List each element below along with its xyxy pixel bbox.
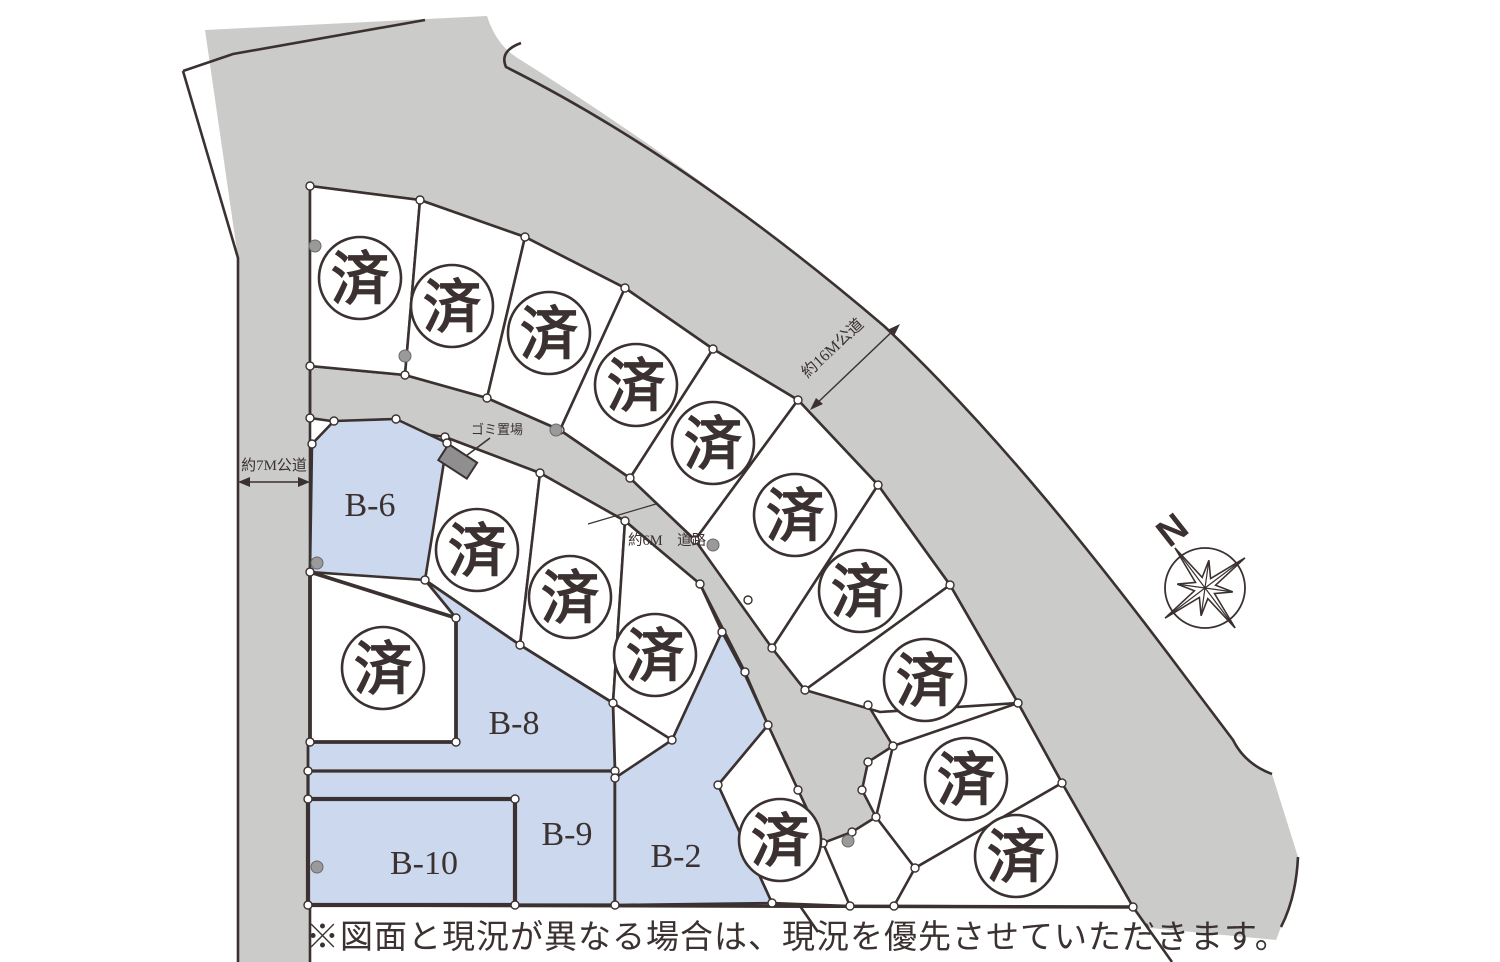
compass: N (1149, 506, 1245, 628)
svg-text:済: 済 (684, 412, 743, 477)
road-7m-label: 約7M公道 (241, 457, 307, 474)
svg-text:済: 済 (331, 247, 390, 312)
lot-b9-label: B-9 (542, 816, 593, 853)
lot-b2-label: B-2 (651, 838, 702, 875)
garbage-label: ゴミ置場 (471, 422, 523, 437)
svg-text:済: 済 (751, 809, 810, 874)
site-plan-page: ゴミ置場 済 済 済 済 済 (0, 0, 1500, 962)
sold-marker: 済 (319, 237, 401, 319)
svg-text:済: 済 (626, 624, 685, 689)
footer-note: ※図面と現況が異なる場合は、現況を優先させていただきます。 (306, 919, 1289, 956)
road-6m-label: 約6M 道路 (628, 532, 707, 549)
svg-text:済: 済 (607, 354, 666, 419)
sold-marker: 済 (672, 402, 754, 484)
svg-text:済: 済 (766, 484, 825, 549)
svg-text:済: 済 (896, 649, 955, 714)
sold-marker: 済 (529, 556, 611, 638)
sold-marker: 済 (342, 627, 424, 709)
svg-text:済: 済 (937, 748, 996, 813)
compass-n-label: N (1149, 506, 1196, 556)
lot-b6-label: B-6 (345, 487, 396, 524)
lot-b8-label: B-8 (489, 705, 540, 742)
svg-text:済: 済 (354, 637, 413, 702)
sold-marker: 済 (411, 265, 493, 347)
sold-marker: 済 (436, 509, 518, 591)
road-7m-dimension: 約7M公道 (238, 457, 310, 487)
sold-marker: 済 (754, 474, 836, 556)
svg-text:済: 済 (520, 302, 579, 367)
sold-marker: 済 (739, 799, 821, 881)
site-plan-map: ゴミ置場 済 済 済 済 済 (0, 0, 1500, 962)
svg-text:済: 済 (987, 825, 1046, 890)
sold-marker: 済 (595, 344, 677, 426)
sold-marker: 済 (819, 550, 901, 632)
svg-text:済: 済 (423, 275, 482, 340)
svg-text:済: 済 (541, 566, 600, 631)
lot-b10-label: B-10 (390, 845, 458, 882)
sold-marker: 済 (975, 815, 1057, 897)
sold-marker: 済 (614, 614, 696, 696)
svg-text:済: 済 (448, 519, 507, 584)
bottom-boundary-line (308, 905, 1133, 907)
sold-marker: 済 (884, 639, 966, 721)
sold-marker: 済 (508, 292, 590, 374)
sold-marker: 済 (925, 738, 1007, 820)
svg-text:済: 済 (831, 560, 890, 625)
